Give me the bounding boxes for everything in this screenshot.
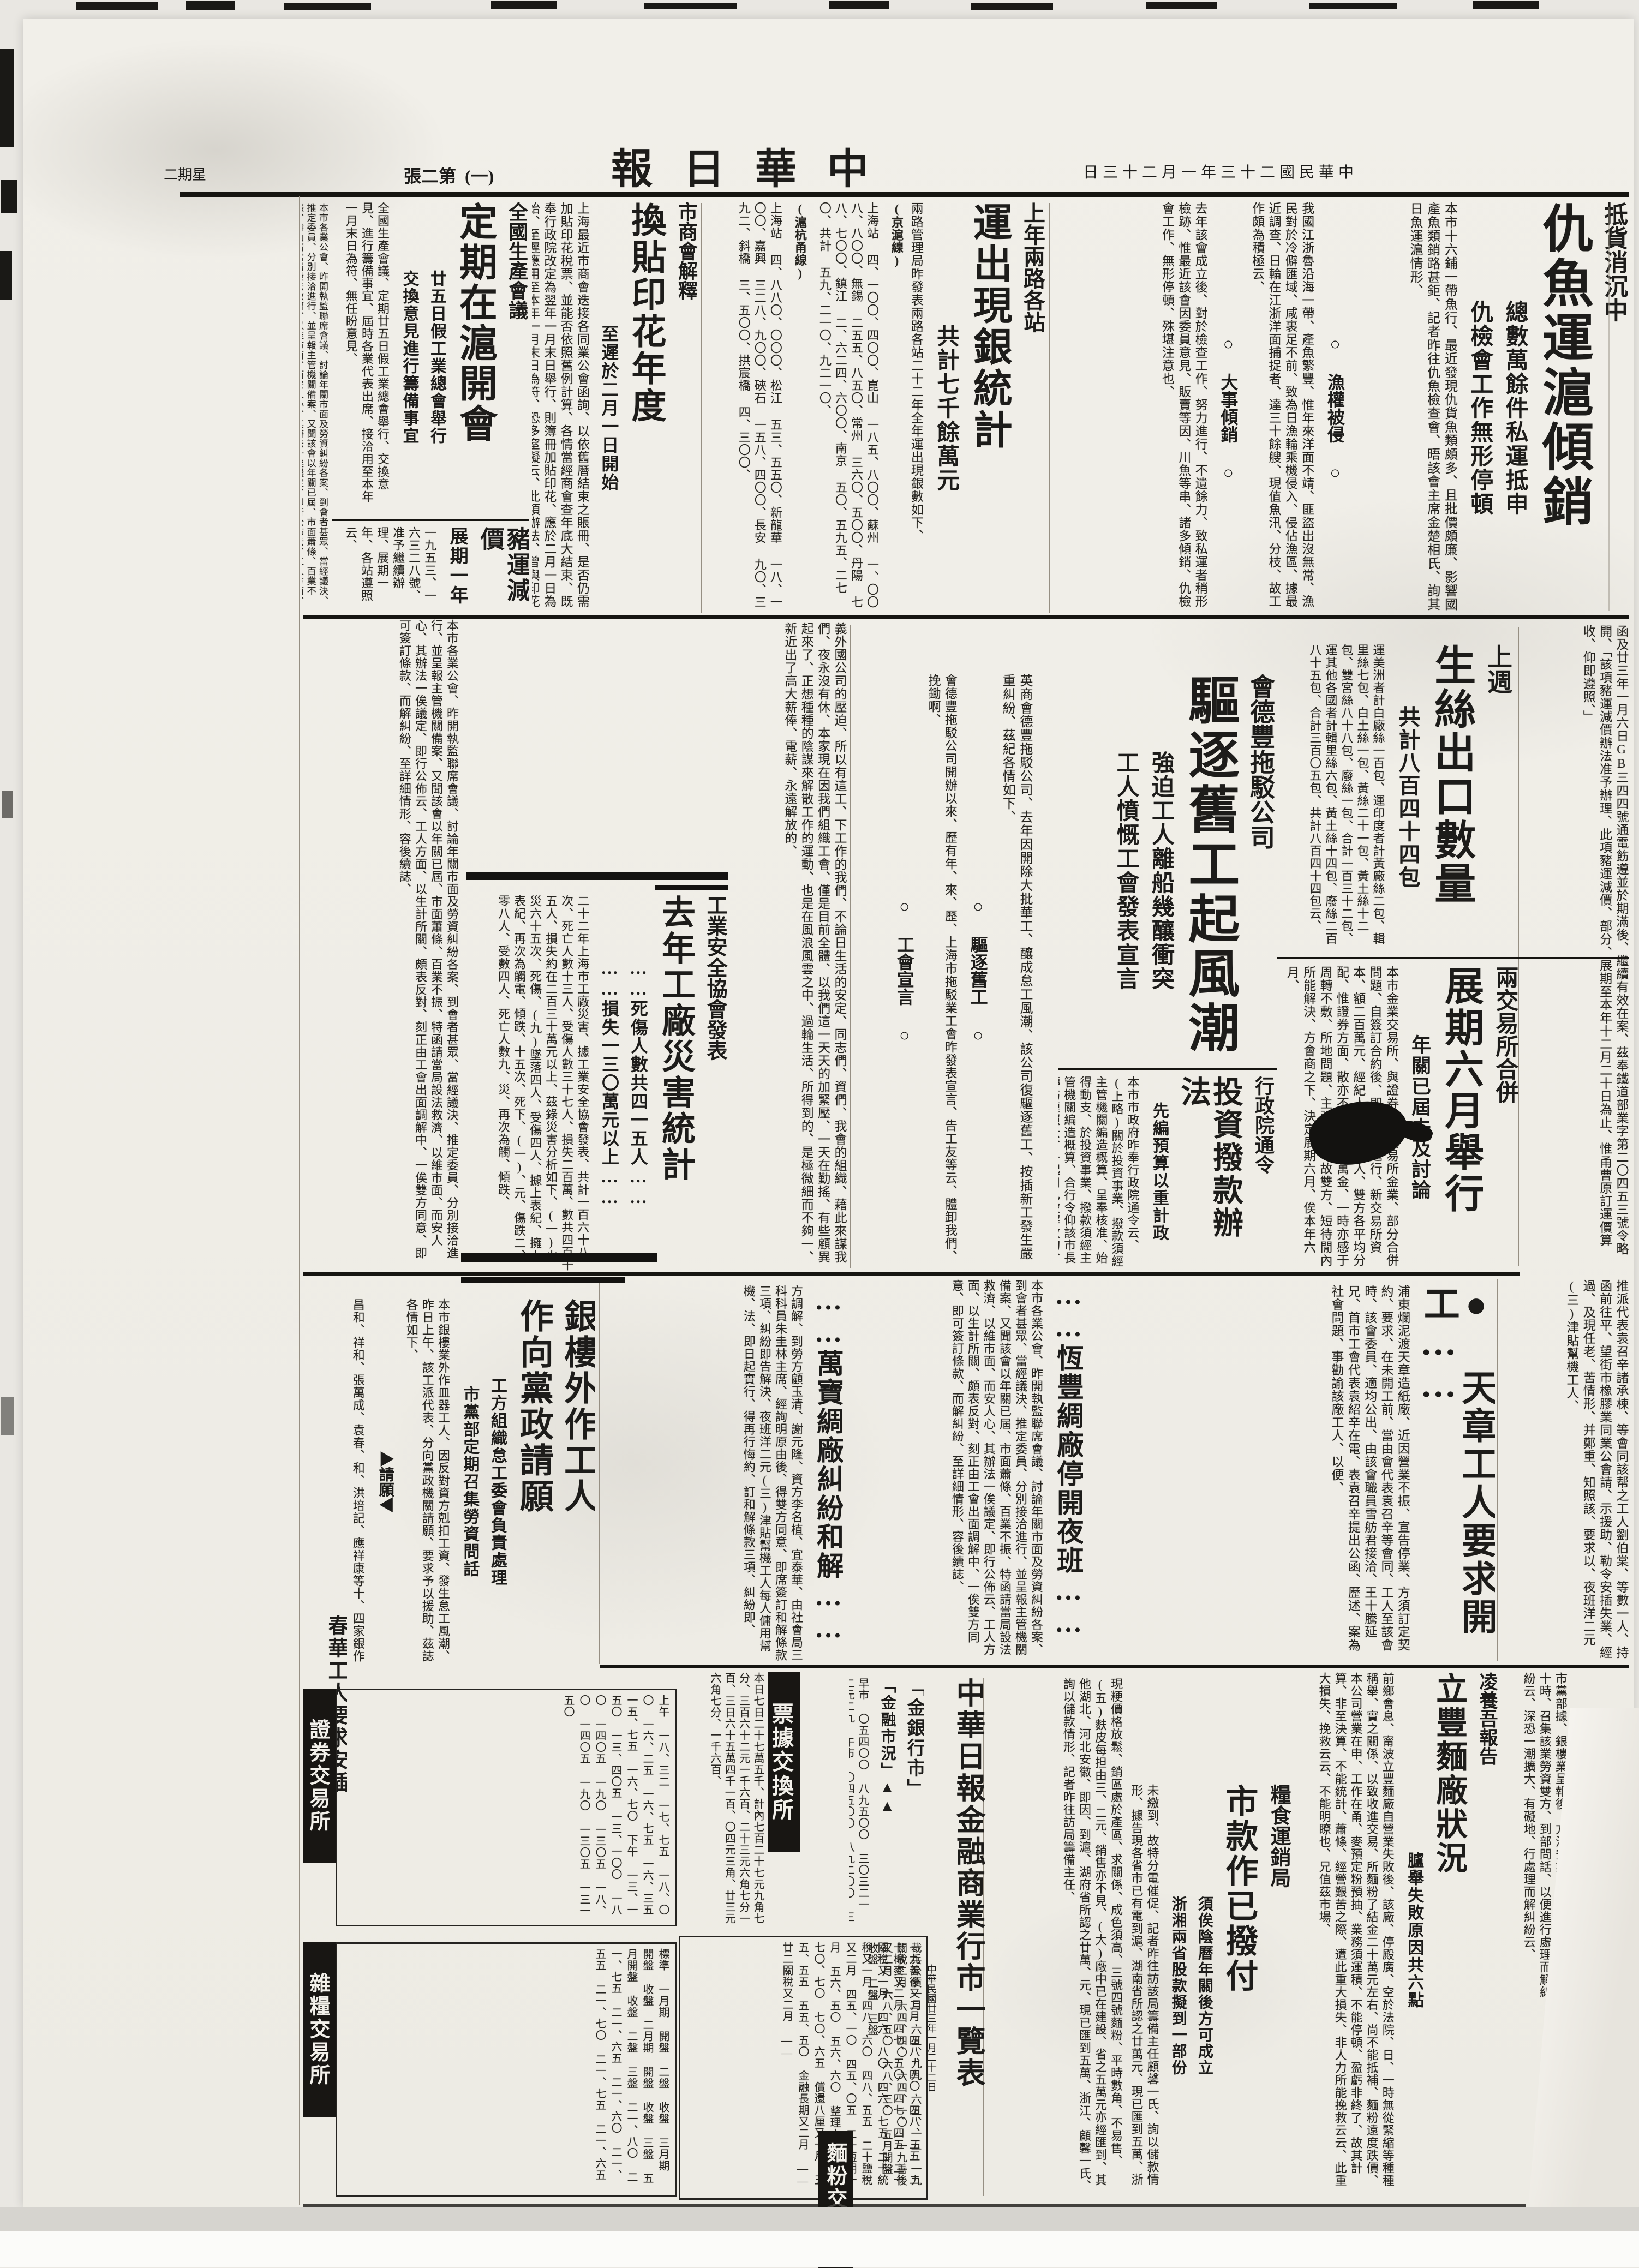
article-body: 我國江浙魯沿海一帶、產魚繁豐、惟年來洋面不靖、匪盜出沒無常、漁民對於冷僻匯域、咸… — [1248, 202, 1314, 614]
article-subhead: 須俟陰曆年關後方可成立 — [1195, 1784, 1213, 2188]
money-market-rows: 裁兵公債一月 六五、九九 六五、一五 一九關稅二月 六四、四〇 六四、一〇 一九… — [851, 1942, 922, 2188]
article-kicker: 抵貨消沉中 — [1598, 202, 1629, 614]
article-headline: 驅逐舊工起風潮 — [1182, 674, 1235, 1068]
article-headline: 定期在滬開會 — [454, 202, 495, 513]
scan-artifact — [76, 2, 158, 10]
article-body: 推派代表袁召辛諸承棟、等會同該帮之工人劉伯棠、等數一人、持函前往平、望街市橡膠業… — [1563, 1279, 1629, 1661]
article-body: 現粳價格放鬆、銷區處於產區、求關係、成色須高、三號四號麵粉、平時數角、不易售、(… — [1061, 1678, 1124, 2196]
article-headline: 運出現銀統計 — [968, 202, 1009, 614]
column-filler: 本市各業公會、昨開執監聯席會議、討論年關市面及勞資糾紛各案、到會者甚眾、當經議決… — [397, 619, 460, 1268]
scan-strip — [0, 2207, 1639, 2231]
finance-table-title: 中華日報金融商業行市一覽表 — [940, 1678, 983, 2169]
grain-exchange-table: 標準 一月期 開盤 二盤 收盤 三月期 開盤 收盤 二月期 開盤 收盤 三盤 五… — [336, 1942, 677, 2197]
scan-artifact — [971, 3, 1053, 10]
article-subhead: 浙湘兩省股款擬到一部份 — [1169, 1784, 1186, 2188]
flour-market-column: 現粳價格放鬆、銷區處於產區、求關係、成色須高、三號四號麵粉、平時數角、不易售、(… — [988, 1678, 1124, 2196]
article-subhead: 年關已屆未及討論 — [1408, 966, 1431, 1268]
headline-bar — [461, 1277, 625, 1283]
divider-rule — [332, 519, 529, 521]
article-subhead: ……死傷人數共四一五人…… — [628, 895, 648, 1271]
article-body: 義外國公司的壓迫、所以有這工、下工作的我們、不論日生活的安定、同志們、資們、我會… — [781, 622, 847, 1268]
column-rule — [1497, 1279, 1498, 1661]
article-kicker: 會德豐拖駁公司 — [1243, 674, 1277, 1068]
left-body-column: 本市各業公會、昨開執監聯席會議、討論年關市面及勞資糾紛各案、到會者甚眾、當經議決… — [332, 619, 460, 1268]
article-lifeng-mill: 凌養吾報告 立豐麵廠狀況 臚舉失敗原因共六點 前鄉會息、甯波立豐麵廠自營業失敗後… — [1304, 1672, 1498, 2188]
article-subhead: 共計八百四十四包 — [1395, 644, 1420, 950]
bottom-rule — [303, 2204, 1526, 2207]
securities-exchange-table: 上午 一八、三二 一七、七五 一八、〇〇 一六、二五 一六、七五 一六、三五 一… — [336, 1689, 677, 1926]
article-subhead: 強迫工人離船幾釀衝突 — [1147, 674, 1174, 1068]
headline-bar — [461, 1253, 657, 1262]
article-kicker: 糧食運銷局 — [1265, 1784, 1292, 2188]
article-stamp-tax: 市商會解釋 換貼印花年度 至遲於二月一日開始 上海最近市商會迭接各同業公會函詢、… — [532, 202, 699, 614]
article-subhead: 工人憤慨工會發表宣言 — [1112, 674, 1139, 1068]
pig-letter-column: 函及廿三年一月六日GB三四四號通電飭遵並於期滿後、繼續有效在案、茲奉鐵道部業字第… — [1522, 625, 1629, 1268]
table-rows: 上午 一八、三二 一七、七五 一八、〇〇 一六、二五 一六、七五 一六、三五 一… — [337, 1690, 675, 1925]
article-headline: 展期六月舉行 — [1439, 966, 1481, 1268]
article-kicker: 上年兩路各站 — [1018, 202, 1046, 614]
article-subhead: 仇檢會工作無形停頓 — [1466, 202, 1492, 614]
article-headline: 投資撥款辦法 — [1177, 1076, 1241, 1268]
article-headline: 去年工廠災害統計 — [657, 895, 692, 1271]
scan-artifact — [491, 1, 557, 9]
gold-market-block: 「金銀行市」 「金融市況」▲▲ 早市 〇五四〇〇 八九五〇〇 三〇三二一 二元二… — [849, 1678, 924, 1929]
column-filler: 本市各業公會、昨開執監聯席會議、討論年關市面及勞資糾紛各案、到會者甚眾、當經議決… — [949, 1279, 1044, 1664]
article-kicker: 凌養吾報告 — [1474, 1672, 1498, 2188]
masthead-title: 中華日報 — [611, 135, 899, 195]
section-label: 工會宣言 — [893, 674, 916, 1267]
scan-artifact — [1146, 2, 1217, 9]
scan-artifact — [1473, 1, 1539, 9]
article-subhead: 至遲於二月一日開始 — [599, 202, 619, 614]
article-body: 一九五三、一六三二八號、准予繼續辦理、展期一年、各站遵照云、 — [343, 526, 438, 613]
article-body: 浦東爛泥渡天章造紙廠、近因營業不振、宣告停業、方須訂定契約、要求、在未開工前、當… — [1328, 1285, 1411, 1664]
section-label: 請願 — [375, 1298, 395, 1665]
column-rule — [850, 625, 851, 1268]
article-kicker: 兩交易所合併 — [1490, 966, 1520, 1268]
scan-artifact — [2, 791, 13, 818]
article-subhead: 廿五日假工業總會舉行 — [427, 202, 446, 513]
section-label: 大事傾銷 — [1217, 202, 1240, 614]
article-headline: 銀樓外作工人 — [559, 1298, 595, 1665]
divider-rule — [1277, 957, 1629, 959]
masthead-date: 中華民國二十三年一月二十三日 — [1083, 160, 1358, 182]
page-marker: (一) — [465, 166, 494, 186]
clearing-house-table: 本日七日二十七萬五千、計內七百二十七元九角七分、三百六十二元一千六百、二十三元六… — [704, 1672, 765, 1929]
article-headline: 生絲出口數量 — [1428, 644, 1472, 950]
section-label: 漁權被侵 — [1324, 202, 1347, 614]
scan-artifact — [284, 3, 371, 10]
article-kicker: 市商會解釋 — [673, 202, 699, 614]
article-tug-strike-body: 英商會德豐拖駁公司、去年因開除大批華工、釀成怠工風潮、該公司復驅逐舊工、按插新工… — [854, 674, 1033, 1267]
article-headline: 天章工人要求開工 — [1419, 1285, 1495, 1664]
article-kicker: 工業安全協會發表 — [701, 895, 728, 1271]
article-city-funds: 糧食運銷局 市款作已撥付 須俟陰曆年關後方可成立 浙湘兩省股款擬到一部份 未繳到… — [1128, 1784, 1292, 2188]
article-body: 方調解、到勞方顧玉清、謝元隆、資方李名植、宜泰華、由社會局三科科員朱圭林主席、經… — [741, 1285, 804, 1667]
article-body: 兩路管理局昨發表兩路各站二十二年全年運出現銀數如下、 — [907, 202, 924, 614]
masthead-rule — [180, 192, 1629, 197]
article-body: 二十二年上海市工廠災害、據工業安全協會發表、共計一百六十八次、死亡人數十三人、受… — [495, 895, 590, 1271]
article-silversmith-petition: 銀樓外作工人 作向黨政請願 工方組織怠工委會負責處理 市黨部定期召集勞資問話 本… — [349, 1298, 595, 1665]
article-subhead: ……損失一三〇萬元以上…… — [599, 895, 619, 1271]
article-kicker: 上週 — [1481, 644, 1514, 950]
table-rows: 上海站 四、八八〇、〇〇〇、松江 五三、五五〇、新龍華 一八、一〇〇、嘉興 三二… — [736, 202, 783, 614]
article-body: 本市銀樓業外作皿器工人、因反對資方剋扣工資、發生怠工風潮、昨日上午、該工派代表、… — [404, 1298, 451, 1665]
article-factory-accidents: 工業安全協會發表 去年工廠災害統計 ……死傷人數共四一五人…… ……損失一三〇萬… — [464, 895, 728, 1271]
article-body: 上海最近市商會迭接各同業公會函詢、以依舊曆結束之賬冊、是否仍需加貼印花稅票、並能… — [532, 202, 590, 614]
table-header: 「金融市況」▲▲ — [878, 1678, 895, 1929]
masthead-edition: (一) 第二張 — [404, 163, 494, 188]
article-subhead: 先編預算以重計政 — [1149, 1076, 1168, 1268]
band-rule — [303, 615, 1629, 619]
column-rule — [701, 203, 702, 613]
article-hengfeng-mill: 恆豐綢廠停開夜班 本市各業公會、昨開執監聯席會議、討論年關市面及勞資糾紛各案、到… — [854, 1279, 1083, 1664]
band-rule — [600, 1665, 1629, 1668]
table-rows: 標準 一月期 開盤 二盤 收盤 三月期 開盤 收盤 二月期 開盤 收盤 三盤 五… — [337, 1944, 675, 2195]
article-subhead: 展期一年 — [446, 526, 468, 613]
scan-artifact — [0, 49, 14, 147]
article-body: 全國生產會議、定期廿五日假工業總會舉行、交換意見、進行籌備事宜、屆時各業代表出席… — [343, 202, 391, 513]
headline-bar — [655, 885, 728, 890]
article-subhead: 共計七千餘萬元 — [932, 202, 959, 614]
article-subhead: 總數萬餘件私運抵申 — [1502, 202, 1528, 614]
right-body-column: 推派代表袁召辛諸承棟、等會同該帮之工人劉伯棠、等數一人、持函前往平、望街市橡膠業… — [1500, 1279, 1629, 1661]
article-pig-freight: 豬運減價 展期一年 一九五三、一六三二八號、准予繼續辦理、展期一年、各站遵照云、 — [332, 526, 529, 613]
article-headline: 萬寶綢廠糾紛和解 — [813, 1285, 843, 1667]
article-subhead: 臚舉失敗原因共六點 — [1404, 1672, 1423, 2188]
margin-column: 本市各業公會、昨開執監聯席會議、討論年關市面及勞資糾紛各案、到會者甚眾、當經議決… — [302, 203, 328, 607]
article-tug-strike-headline: 會德豐拖駁公司 驅逐舊工起風潮 強迫工人離船幾釀衝突 工人憤慨工會發表宣言 — [1037, 674, 1277, 1068]
article-body: 前鄉會息、甯波立豐麵廠自營業失敗後、該廠、停殿廣、空於法院、日、一時無從緊縮等種… — [1317, 1672, 1396, 2188]
table-rows: 早市 〇五四〇〇 八九五〇〇 三〇三二一 二元二九 午市 〇四五〇〇 八九二〇〇… — [849, 1678, 870, 1929]
article-headline: 市款作已撥付 — [1222, 1784, 1256, 2188]
scan-artifact — [0, 251, 12, 300]
article-silk-export: 上週 生絲出口數量 共計八百四十四包 運美洲者計白廠絲一百包、運印度者計黃廠絲二… — [1279, 644, 1514, 950]
article-body: 函及廿三年一月六日GB三四四號通電飭遵並於期滿後、繼續有效在案、茲奉鐵道部業字第… — [1580, 625, 1629, 1268]
article-wanbao-mill: 萬寶綢廠糾紛和解 方調解、到勞方顧玉清、謝元隆、資方李名植、宜泰華、由社會局三科… — [603, 1285, 843, 1667]
scan-artifact — [186, 1, 235, 10]
column-rule — [1049, 203, 1050, 613]
scan-artifact — [829, 1, 889, 9]
table-rows: 裁兵公債一月 六五、九九 六五、一五 一九關稅二月 六四、四〇 六四、一〇 一九… — [864, 1942, 922, 2188]
table-rows: 本日七日二十七萬五千、計內七百二十七元九角七分、三百六十二元一千六百、二十三元六… — [707, 1672, 765, 1929]
article-fish-smuggling: 抵貨消沉中 仇魚運滬傾銷 總數萬餘件私運抵申 仇檢會工作無形停頓 本市十六鋪一帶… — [1353, 202, 1629, 614]
article-body: 運美洲者計白廠絲一百包、運印度者計黃廠絲二包、輯里絲七包、白土絲一包、黃絲二十一… — [1307, 644, 1386, 950]
newspaper-scan: { "masthead":{ "paper_name":"中華日報", "dat… — [0, 0, 1639, 2267]
column-rule — [299, 196, 300, 2205]
article-body: 本市十六鋪一帶魚行、最近發現仇貨魚類頗多、且批價頗廉、影響國產魚類銷路甚鉅、記者… — [1405, 202, 1457, 614]
crease-line — [1608, 207, 1610, 611]
article-kicker: 全國生產會議 — [503, 202, 529, 513]
article-body: 會德豐拖駁公司開辦以來、歷有年、來、歷、上海市拖駁業工會昨發表宣言、告工友等云、… — [925, 674, 958, 1267]
article-silver-stats: 上年兩路各站 運出現銀統計 共計七千餘萬元 兩路管理局昨發表兩路各站二十二年全年… — [906, 202, 1046, 614]
article-investment-order: 行政院通令 投資撥款辦法 先編預算以重計政 本市市政府昨奉行政院通令云、(上略)… — [1058, 1076, 1276, 1268]
article-tianzhang-workers: 天章工人要求開工 浦東爛泥渡天章造紙廠、近因營業不振、宣告停業、方須訂定契約、要… — [1200, 1285, 1495, 1664]
article-headline: 立豐麵廠狀況 — [1432, 1672, 1465, 2188]
grain-exchange-header: 雜糧交易所 — [303, 1942, 336, 2117]
article-production-conference: 全國生產會議 定期在滬開會 廿五日假工業總會舉行 交換意見進行籌備事宜 全國生產… — [332, 202, 529, 513]
edition-label: 第二張 — [404, 166, 456, 186]
scan-artifact — [1, 1397, 14, 1435]
article-body: 本市市政府昨奉行政院通令云、(上略)關於投資事業、撥款須經主管機關編造概算、呈奉… — [1058, 1076, 1140, 1268]
scan-strip — [0, 2231, 1639, 2267]
article-kicker: 行政院通令 — [1249, 1076, 1276, 1268]
scan-artifact — [1, 180, 17, 213]
section-label: 驅逐舊工 — [966, 674, 989, 1267]
table-header: 「金銀行市」 — [904, 1678, 924, 1929]
table-rows: 上海站 四、一〇〇、四〇〇、崑山 一八五、八〇〇、蘇州 一、〇〇八、八〇〇、無錫… — [817, 202, 880, 614]
article-headline: 仇魚運滬傾銷 — [1536, 202, 1589, 614]
article-subhead: 工方組織怠工委會負責處理 — [487, 1298, 506, 1665]
article-headline: 作向黨政請願 — [515, 1298, 551, 1665]
article-subhead: 市黨部定期召集勞資問話 — [460, 1298, 479, 1665]
article-headline: 換貼印花年度 — [627, 202, 664, 614]
article-body: 未繳到、故特分電催促、記者昨往訪該局籌備主任顧馨一氏、詢以儲款情形、據告現各省市… — [1128, 1784, 1160, 2188]
article-subhead: 交換意見進行籌備事宜 — [399, 202, 418, 513]
divider-rule — [1058, 1068, 1277, 1070]
table-section: (滬杭甬線) — [792, 202, 808, 614]
band-rule — [303, 1272, 1520, 1276]
column-filler: 本市各業公會、昨開執監聯席會議、討論年關市面及勞資糾紛各案、到會者甚眾、當經議決… — [302, 203, 328, 607]
scan-artifact — [1309, 3, 1397, 9]
article-body: 昌和、祥和、張萬成、袁春、和、洪培記、應祥康等十、四家銀作工人、先後宣告、赴城內… — [349, 1298, 366, 1665]
article-body: 去年該會成立後、對於檢查工作、努力進行、不遺餘力、致私運者稍形檢跡、惟最近該會因… — [1158, 202, 1208, 614]
table-section: (京滬線) — [889, 202, 905, 614]
clearing-house-header: 票據交換所 — [768, 1672, 800, 1852]
article-headline: 恆豐綢廠停開夜班 — [1053, 1279, 1083, 1664]
masthead-weekday: 星期二 — [164, 164, 206, 184]
union-manifesto-column: 義外國公司的壓迫、所以有這工、下工作的我們、不論日生活的安定、同志們、資們、我會… — [728, 622, 847, 1268]
scan-artifact — [644, 3, 737, 9]
headline-bar — [466, 872, 728, 880]
article-fishing-rights: 漁權被侵 我國江浙魯沿海一帶、產魚繁豐、惟年來洋面不靖、匪盜出沒無常、漁民對於冷… — [1052, 202, 1347, 614]
article-headline: 豬運減價 — [476, 526, 529, 613]
column-rule — [599, 1282, 600, 1664]
securities-exchange-header: 證券交易所 — [303, 1689, 336, 1863]
silver-figures-table: (京滬線) 上海站 四、一〇〇、四〇〇、崑山 一八五、八〇〇、蘇州 一、〇〇八、… — [704, 202, 905, 614]
article-body: 英商會德豐拖駁公司、去年因開除大批華工、釀成怠工風潮、該公司復驅逐舊工、按插新工… — [998, 674, 1033, 1267]
